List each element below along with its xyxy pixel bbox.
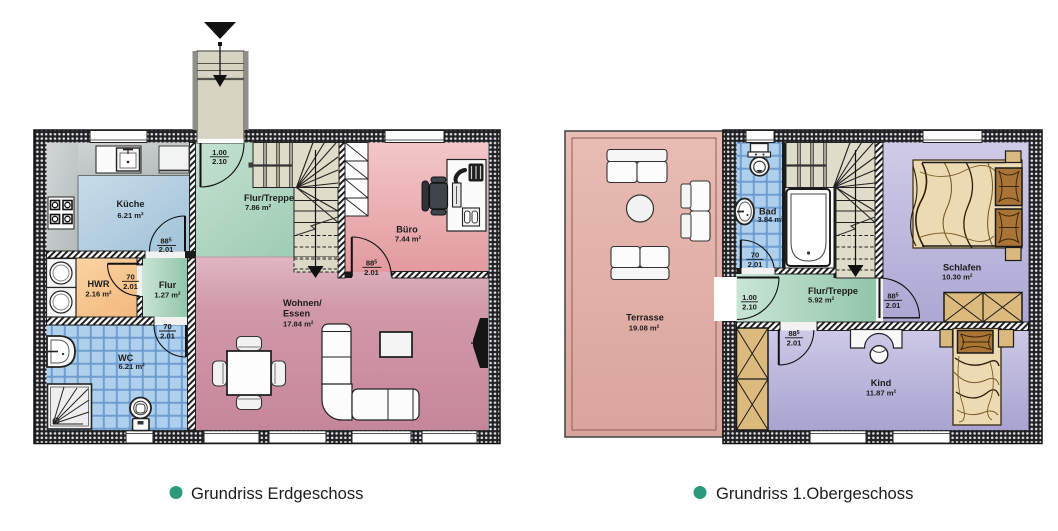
svg-text:1.00: 1.00	[212, 148, 227, 157]
svg-text:Grundriss 1.Obergeschoss: Grundriss 1.Obergeschoss	[716, 484, 913, 503]
svg-text:Grundriss Erdgeschoss: Grundriss Erdgeschoss	[191, 484, 363, 503]
svg-text:Wohnen/: Wohnen/	[283, 298, 322, 308]
svg-text:70: 70	[126, 273, 134, 282]
svg-text:19.08 m²: 19.08 m²	[629, 324, 660, 333]
svg-text:Küche: Küche	[116, 199, 144, 209]
svg-text:Terrasse: Terrasse	[626, 313, 664, 323]
svg-text:6.21 m²: 6.21 m²	[119, 362, 146, 371]
svg-text:Essen: Essen	[283, 309, 310, 319]
svg-text:Schlafen: Schlafen	[943, 263, 982, 273]
svg-text:Kind: Kind	[871, 378, 891, 388]
svg-text:2.01: 2.01	[748, 260, 764, 269]
svg-text:3.84 m²: 3.84 m²	[758, 215, 785, 224]
svg-text:2.16 m²: 2.16 m²	[85, 290, 112, 299]
svg-text:2.01: 2.01	[886, 301, 902, 310]
svg-text:Büro: Büro	[396, 225, 418, 235]
svg-text:2.10: 2.10	[742, 303, 757, 312]
svg-text:11.87 m²: 11.87 m²	[866, 389, 896, 398]
svg-text:6.21 m²: 6.21 m²	[117, 211, 144, 220]
svg-text:Flur: Flur	[159, 280, 177, 290]
svg-text:2.10: 2.10	[212, 157, 227, 166]
svg-text:70: 70	[163, 322, 171, 331]
svg-text:10.30 m²: 10.30 m²	[942, 273, 973, 282]
svg-text:2.01: 2.01	[160, 332, 176, 341]
svg-text:7.86 m²: 7.86 m²	[245, 203, 272, 212]
svg-text:2.01: 2.01	[159, 245, 175, 254]
svg-text:Flur/Treppe: Flur/Treppe	[808, 286, 858, 296]
svg-text:HWR: HWR	[88, 279, 110, 289]
svg-text:17.84 m²: 17.84 m²	[283, 320, 314, 329]
svg-text:2.01: 2.01	[364, 268, 380, 277]
svg-text:1.27 m²: 1.27 m²	[154, 291, 181, 300]
svg-text:2.01: 2.01	[123, 282, 139, 291]
svg-text:7.44 m²: 7.44 m²	[395, 235, 422, 244]
svg-text:1.00: 1.00	[742, 293, 757, 302]
svg-text:Flur/Treppe: Flur/Treppe	[244, 193, 294, 203]
svg-text:2.01: 2.01	[787, 339, 803, 348]
svg-text:70: 70	[751, 251, 759, 260]
svg-text:5.92 m²: 5.92 m²	[808, 296, 835, 305]
